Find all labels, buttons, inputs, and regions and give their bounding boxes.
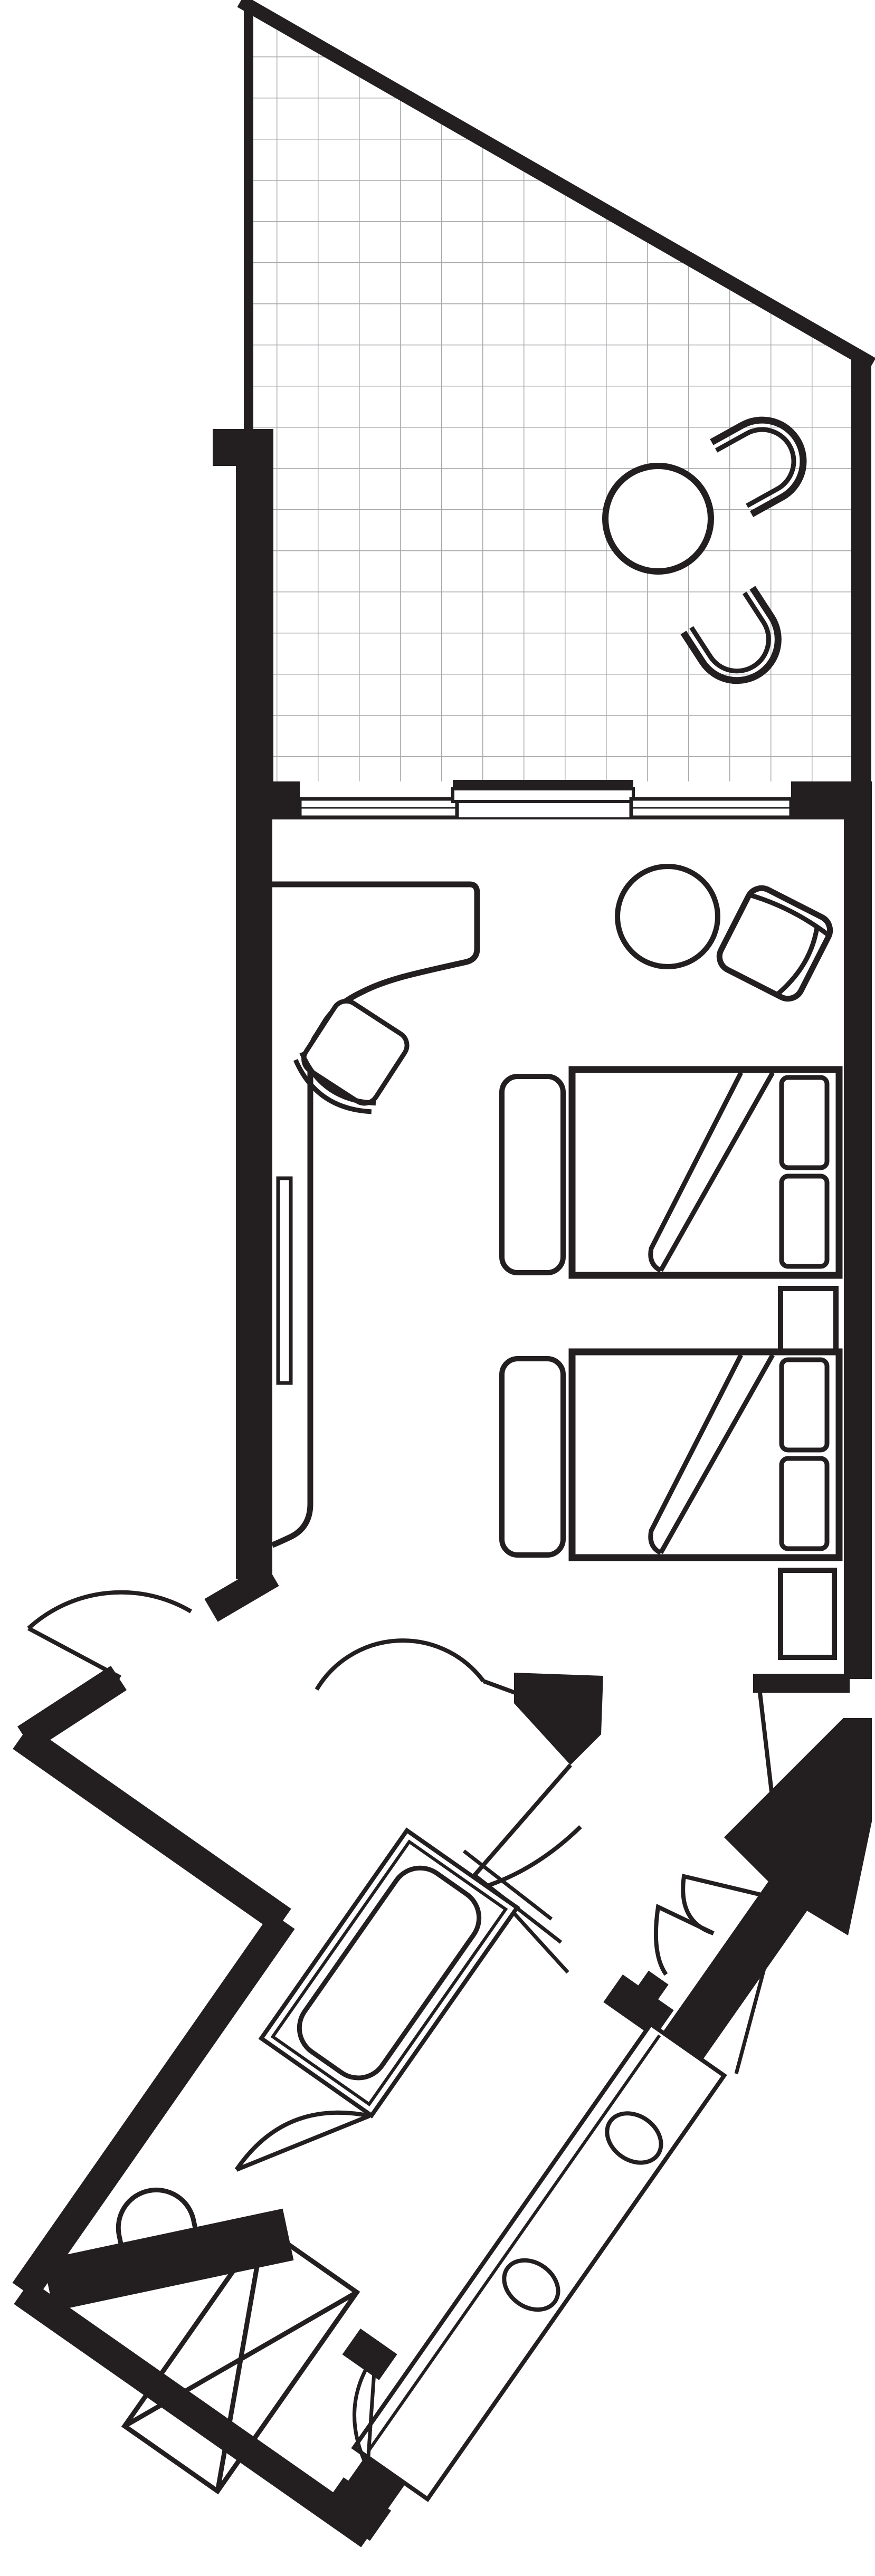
window-left: Fixed window <box>300 799 457 817</box>
bedroom: Built-in desk / console Television on co… <box>236 781 872 1679</box>
entry-wedge-wall <box>514 1673 603 1765</box>
terrace: Terrace Round terrace table Terrace chai… <box>213 1 872 783</box>
terrace-table: Round terrace table <box>605 466 711 571</box>
closet-wedge-wall <box>724 1718 872 1935</box>
sliding-door: Sliding terrace door <box>453 780 633 802</box>
window-right: Fixed window <box>631 799 791 817</box>
vanity: Vanity counter with two basins Wash basi… <box>354 2024 724 2499</box>
pillow: Pillow <box>782 1360 827 1450</box>
bathroom-wing: Closet folding doors Bathroom door Glass… <box>22 1674 872 2541</box>
armchair: Lounge armchair <box>714 883 835 1004</box>
pillow: Pillow <box>782 1077 827 1168</box>
bed-2-group: Luggage bench Twin bed with turned-down … <box>502 1352 839 1558</box>
tile-floor-grid <box>249 3 871 781</box>
floor-plan-drawing: Terrace Round terrace table Terrace chai… <box>0 0 875 2576</box>
window-pillar-left <box>271 781 300 818</box>
luggage-rack: Luggage rack <box>781 1570 834 1657</box>
bench-1: Luggage bench <box>502 1076 563 1273</box>
window-wall: Fixed window Sliding terrace door Fixed … <box>271 780 872 818</box>
left-wall <box>236 781 272 1579</box>
vestibule-wall-south <box>21 1737 283 1921</box>
toilet-door: WC door <box>236 2113 369 2170</box>
desk-chair: Desk chair <box>287 994 415 1123</box>
vestibule-wall-west <box>25 1678 119 1739</box>
bed-1-group: Luggage bench Twin bed with turned-down … <box>502 1070 839 1275</box>
left-wall-upper <box>236 464 273 783</box>
terrace-wall-stub <box>213 429 273 466</box>
right-wall <box>844 818 872 1679</box>
tv: Television on console <box>278 1178 291 1383</box>
side-table: Round side table <box>617 866 718 967</box>
closet-area: Closet folding doors <box>603 1674 872 2074</box>
wing-wall-tip <box>22 2292 369 2535</box>
closet-stub-wall <box>753 1674 850 1693</box>
entry-jamb-wall <box>211 1575 272 1610</box>
floor-plan-page: Terrace Round terrace table Terrace chai… <box>0 0 875 2576</box>
bench-2: Luggage bench <box>502 1359 563 1555</box>
window-pillar-right <box>791 781 872 818</box>
pillow: Pillow <box>782 1176 827 1266</box>
desk: Built-in desk / console <box>272 884 477 1545</box>
bathroom-door: Bathroom door <box>460 1765 581 1893</box>
entry: Entry double swing door <box>21 1575 603 1921</box>
pillow: Pillow <box>782 1458 827 1549</box>
